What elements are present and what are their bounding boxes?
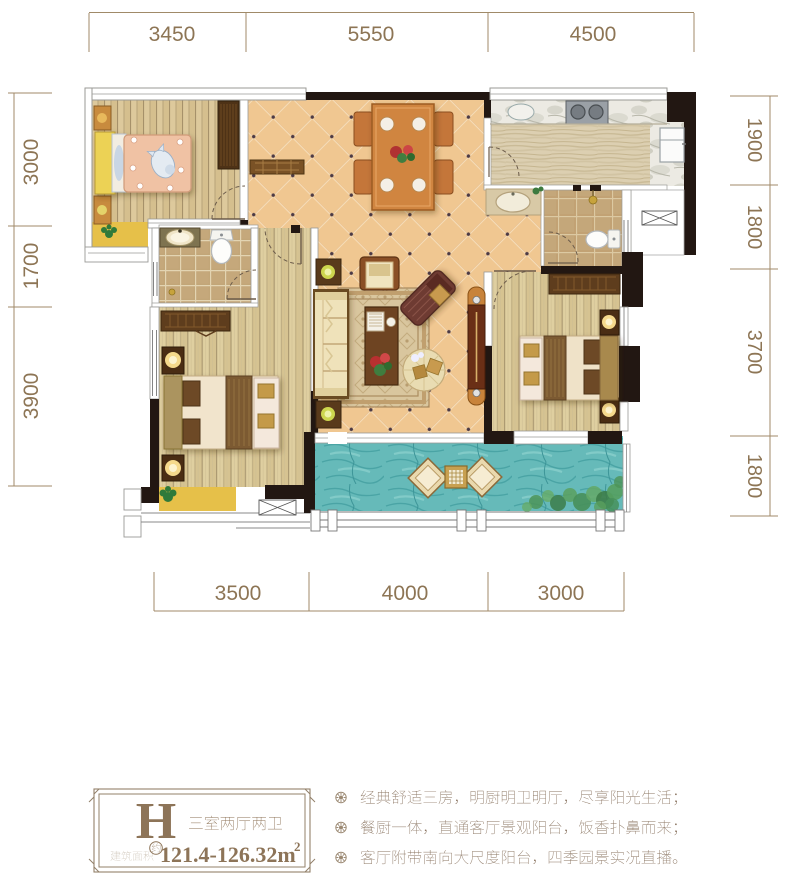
svg-text:1800: 1800: [743, 454, 765, 499]
svg-text:3700: 3700: [743, 330, 765, 375]
svg-text:3450: 3450: [149, 23, 196, 46]
svg-text:1900: 1900: [743, 118, 765, 163]
svg-text:121.4-126.32m: 121.4-126.32m: [160, 842, 296, 867]
svg-text:4000: 4000: [382, 582, 429, 605]
svg-text:3500: 3500: [215, 582, 262, 605]
svg-text:2: 2: [294, 839, 301, 854]
svg-text:3000: 3000: [538, 582, 585, 605]
svg-text:3000: 3000: [20, 139, 43, 186]
svg-text:1800: 1800: [743, 205, 765, 250]
svg-text:3900: 3900: [20, 373, 43, 420]
svg-text:5550: 5550: [348, 23, 395, 46]
svg-text:1700: 1700: [20, 243, 43, 290]
svg-text:4500: 4500: [570, 23, 617, 46]
